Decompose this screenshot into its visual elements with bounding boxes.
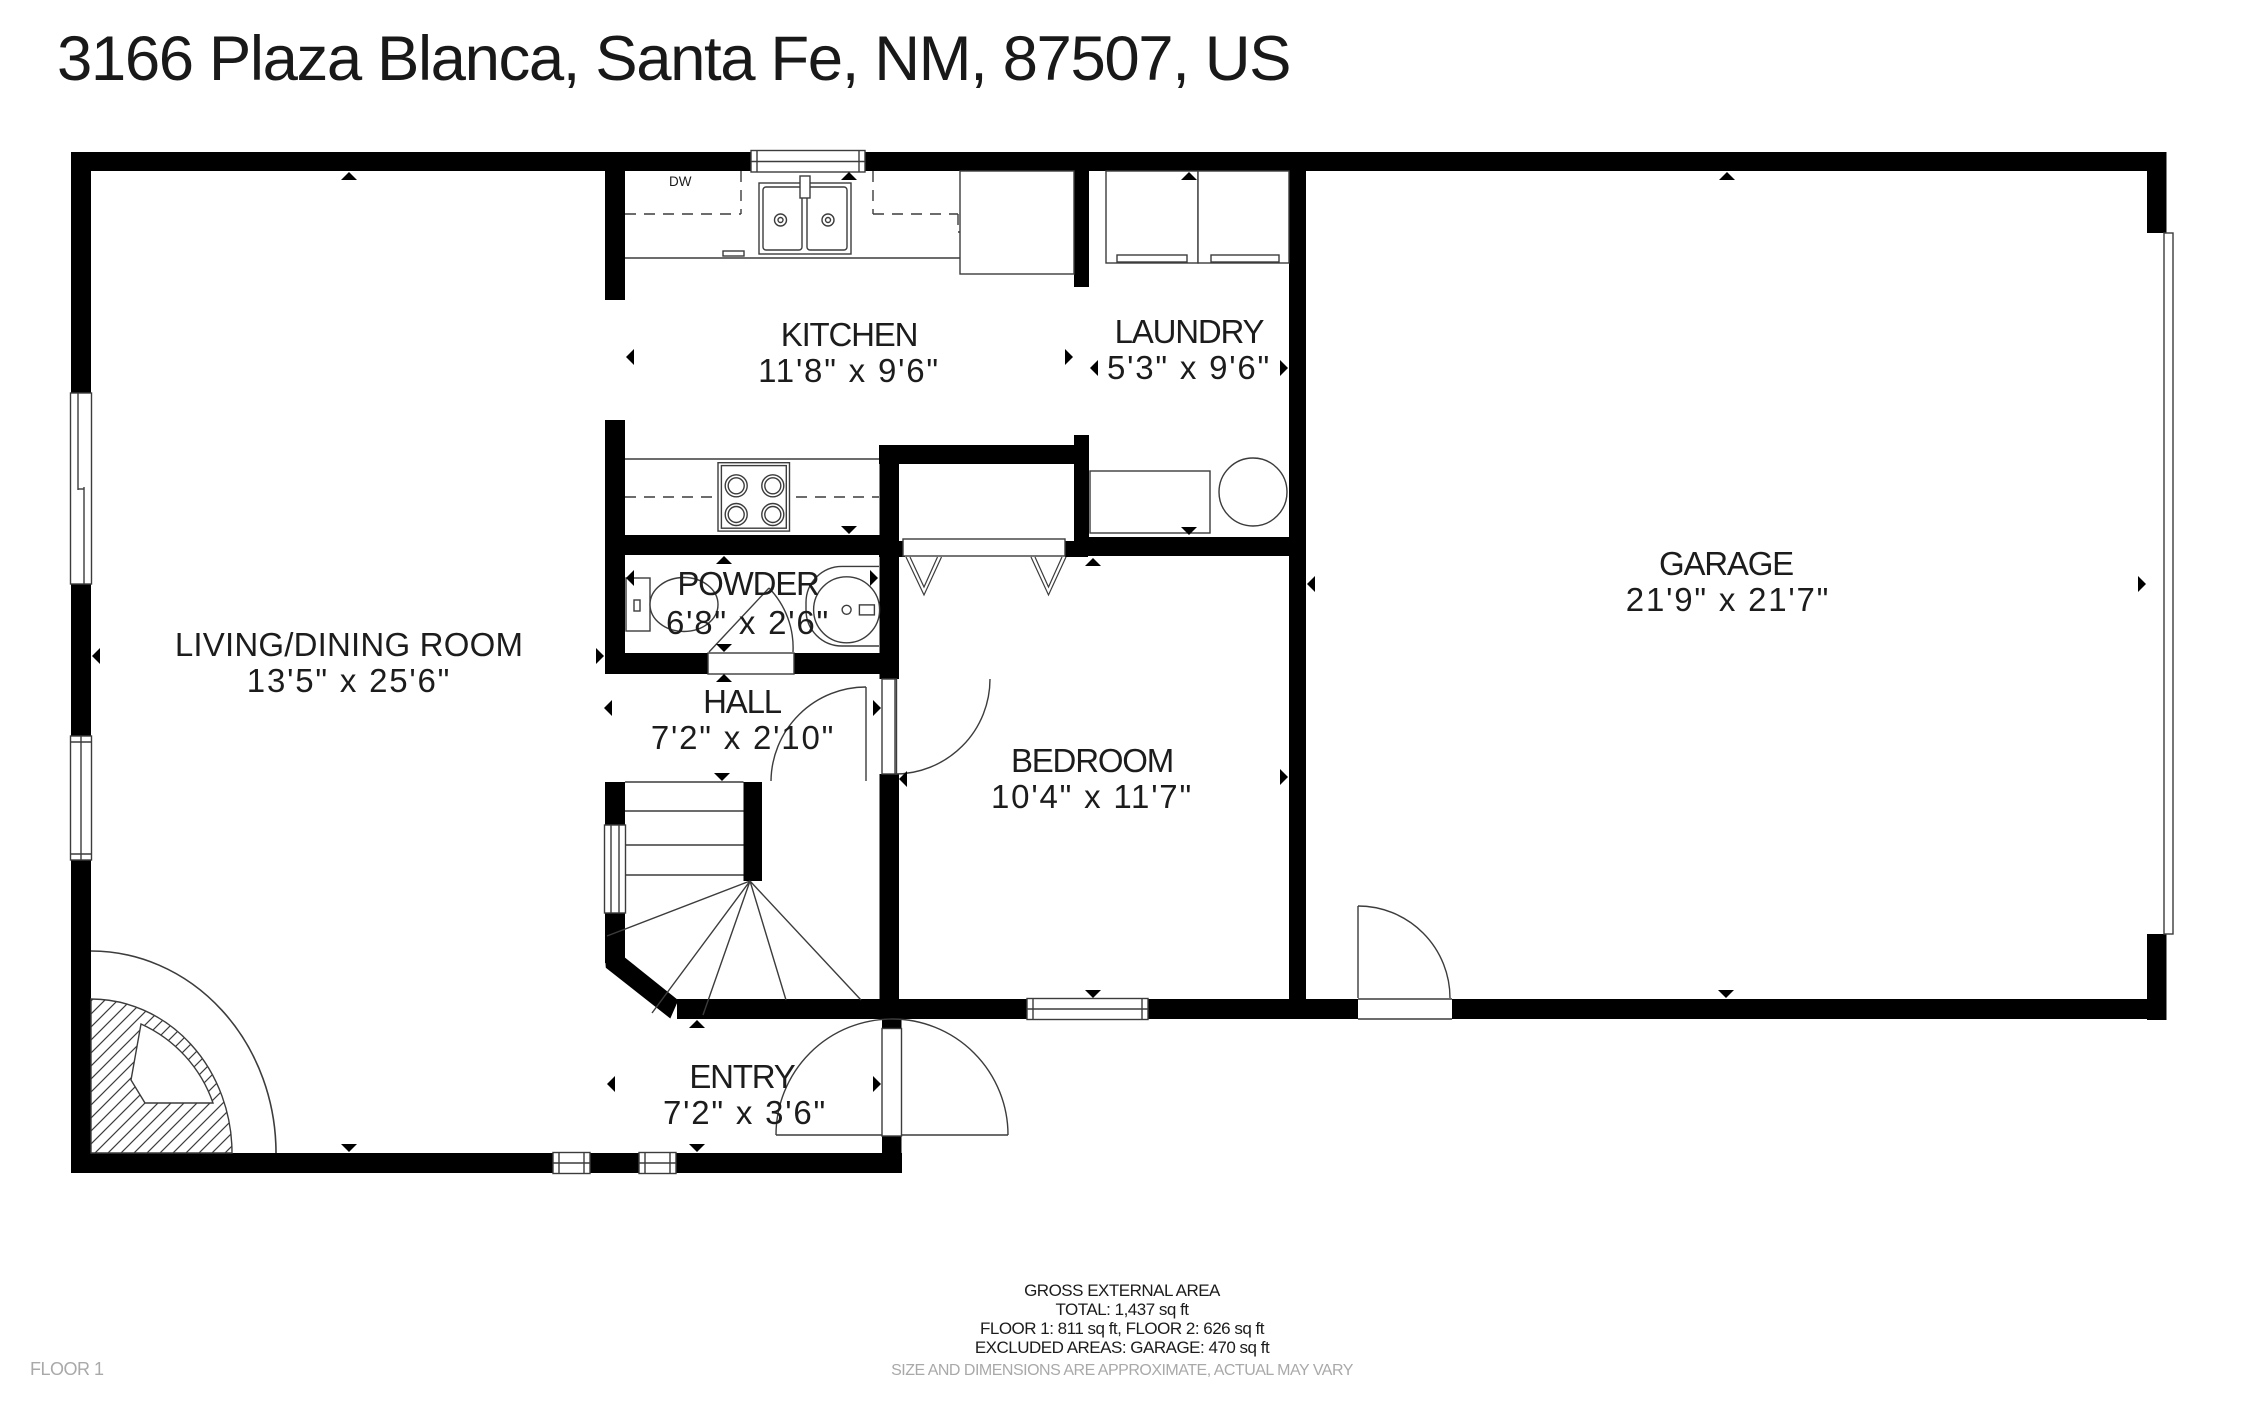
svg-text:FLOOR 1: FLOOR 1: [30, 1359, 104, 1379]
svg-text:EXCLUDED AREAS: GARAGE: 470 sq: EXCLUDED AREAS: GARAGE: 470 sq ft: [975, 1338, 1270, 1357]
svg-text:GARAGE: GARAGE: [1659, 545, 1793, 582]
svg-text:POWDER: POWDER: [677, 565, 819, 602]
svg-text:10'4" x 11'7": 10'4" x 11'7": [991, 778, 1193, 815]
svg-text:DW: DW: [669, 174, 692, 189]
svg-text:FLOOR 1: 811 sq ft, FLOOR 2: 6: FLOOR 1: 811 sq ft, FLOOR 2: 626 sq ft: [980, 1319, 1265, 1338]
svg-text:SIZE AND DIMENSIONS ARE APPROX: SIZE AND DIMENSIONS ARE APPROXIMATE, ACT…: [891, 1362, 1354, 1379]
svg-text:HALL: HALL: [703, 683, 782, 720]
svg-text:11'8" x 9'6": 11'8" x 9'6": [758, 352, 940, 389]
svg-text:5'3" x 9'6": 5'3" x 9'6": [1107, 349, 1271, 386]
svg-text:7'2" x 3'6": 7'2" x 3'6": [663, 1094, 827, 1131]
svg-text:TOTAL: 1,437 sq ft: TOTAL: 1,437 sq ft: [1055, 1300, 1189, 1319]
svg-text:GROSS EXTERNAL AREA: GROSS EXTERNAL AREA: [1024, 1281, 1221, 1300]
svg-text:6'8" x 2'6": 6'8" x 2'6": [666, 604, 830, 641]
svg-text:KITCHEN: KITCHEN: [781, 316, 917, 353]
svg-text:BEDROOM: BEDROOM: [1011, 742, 1173, 779]
svg-text:13'5" x 25'6": 13'5" x 25'6": [247, 662, 451, 699]
svg-text:LAUNDRY: LAUNDRY: [1115, 313, 1265, 350]
svg-text:7'2" x 2'10": 7'2" x 2'10": [651, 719, 835, 756]
svg-text:LIVING/DINING ROOM: LIVING/DINING ROOM: [175, 626, 523, 663]
svg-text:ENTRY: ENTRY: [689, 1058, 795, 1095]
svg-text:3166 Plaza Blanca, Santa Fe, N: 3166 Plaza Blanca, Santa Fe, NM, 87507, …: [57, 24, 1290, 94]
svg-text:21'9" x 21'7": 21'9" x 21'7": [1626, 581, 1830, 618]
